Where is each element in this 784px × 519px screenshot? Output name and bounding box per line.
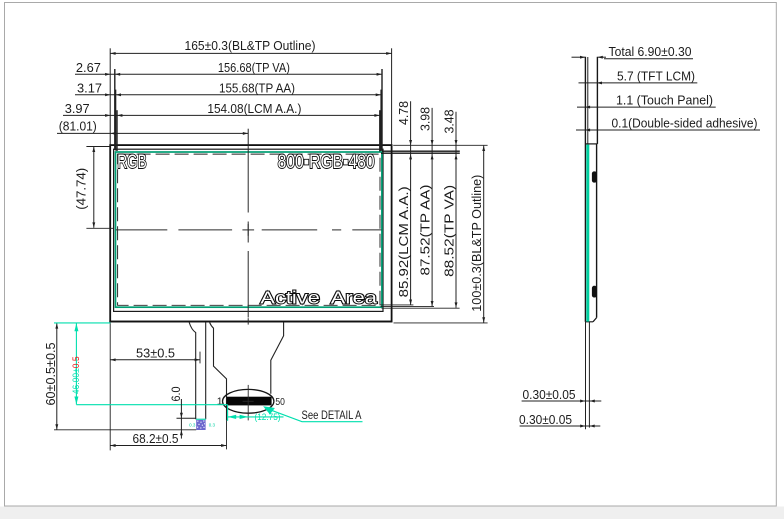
svg-text:RGB: RGB — [117, 152, 147, 173]
svg-text:68.2±0.5: 68.2±0.5 — [133, 431, 179, 446]
svg-text:0.3: 0.3 — [189, 422, 196, 427]
svg-text:100±0.3(BL&TP Outline): 100±0.3(BL&TP Outline) — [469, 175, 484, 312]
svg-text:0.3: 0.3 — [209, 422, 216, 427]
svg-text:(81.01): (81.01) — [59, 119, 97, 134]
svg-text:154.08(LCM A.A.): 154.08(LCM A.A.) — [207, 101, 301, 116]
svg-text:5.7 (TFT LCM): 5.7 (TFT LCM) — [617, 68, 695, 83]
svg-text:156.68(TP VA): 156.68(TP VA) — [218, 60, 290, 75]
svg-text:165±0.3(BL&TP Outline): 165±0.3(BL&TP Outline) — [185, 38, 316, 53]
svg-text:3.98: 3.98 — [417, 107, 432, 131]
svg-text:2.67: 2.67 — [76, 60, 101, 75]
svg-text:See DETAIL A: See DETAIL A — [302, 410, 362, 422]
svg-text:50: 50 — [275, 396, 285, 408]
svg-text:800▪RGB▪480: 800▪RGB▪480 — [278, 152, 375, 173]
svg-text:0.1(Double-sided adhesive): 0.1(Double-sided adhesive) — [612, 115, 758, 130]
svg-text:4.78: 4.78 — [396, 101, 411, 125]
svg-text:3.48: 3.48 — [441, 110, 456, 134]
svg-text:Active Area: Active Area — [260, 288, 377, 308]
svg-text:1: 1 — [217, 395, 223, 407]
svg-text:85.92(LCM A.A.): 85.92(LCM A.A.) — [396, 186, 411, 297]
svg-text:88.52(TP VA): 88.52(TP VA) — [441, 185, 456, 277]
svg-text:(47.74): (47.74) — [73, 168, 88, 210]
svg-text:(12.75): (12.75) — [255, 412, 281, 422]
svg-text:0.30±0.05: 0.30±0.05 — [523, 387, 576, 402]
svg-text:87.52(TP AA): 87.52(TP AA) — [417, 185, 432, 276]
svg-text:1.1 (Touch Panel): 1.1 (Touch Panel) — [616, 93, 713, 108]
svg-text:53±0.5: 53±0.5 — [136, 345, 175, 360]
svg-text:155.68(TP AA): 155.68(TP AA) — [219, 80, 295, 95]
svg-text:0.30±0.05: 0.30±0.05 — [519, 412, 572, 427]
svg-text:Total 6.90±0.30: Total 6.90±0.30 — [609, 44, 692, 59]
svg-text:3.17: 3.17 — [77, 80, 102, 95]
svg-text:46.00±0.5: 46.00±0.5 — [71, 356, 82, 394]
svg-text:6.0: 6.0 — [169, 386, 183, 401]
svg-text:3.97: 3.97 — [65, 101, 90, 116]
svg-text:60±0.5±0.5: 60±0.5±0.5 — [43, 343, 58, 406]
